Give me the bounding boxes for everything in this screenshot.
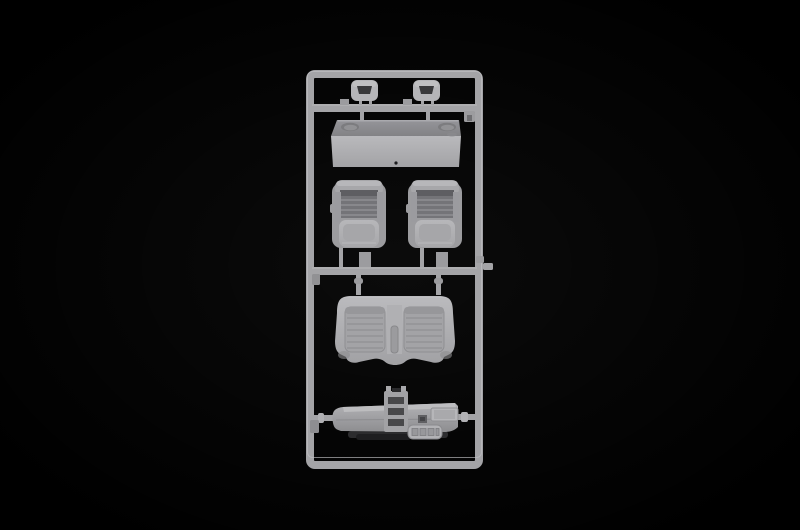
rail-block: [312, 274, 320, 285]
shelf-box: [331, 120, 461, 167]
gate-tab: [403, 99, 412, 105]
photo-background: [0, 0, 800, 530]
dashboard-button-panel: [408, 425, 442, 439]
rail-nub: [476, 256, 484, 263]
headrest-opening: [419, 86, 434, 94]
bench-center-slot: [391, 326, 398, 353]
rail-bracket: [310, 420, 319, 433]
seat-sprue-peg: [420, 246, 424, 267]
seat-cushion-inset: [343, 224, 375, 241]
rail-outer-stub: [483, 263, 493, 270]
headrest-opening: [357, 86, 372, 94]
gate-stub: [426, 112, 430, 121]
gate-tab: [340, 99, 349, 105]
seat-sprue-gate: [436, 252, 448, 267]
sprue-photo: [0, 0, 800, 530]
bench-panel-right: [404, 307, 444, 352]
shelf-box-pin-mark: [394, 161, 397, 164]
dashboard-ladder-bracket: [384, 386, 408, 432]
gate-stub: [360, 112, 364, 121]
bench-panel-left: [345, 307, 385, 352]
seat-sprue-peg: [339, 246, 343, 267]
light-falloff: [0, 0, 800, 530]
seat-sprue-gate: [359, 252, 371, 267]
seat-cushion-inset: [419, 224, 451, 241]
